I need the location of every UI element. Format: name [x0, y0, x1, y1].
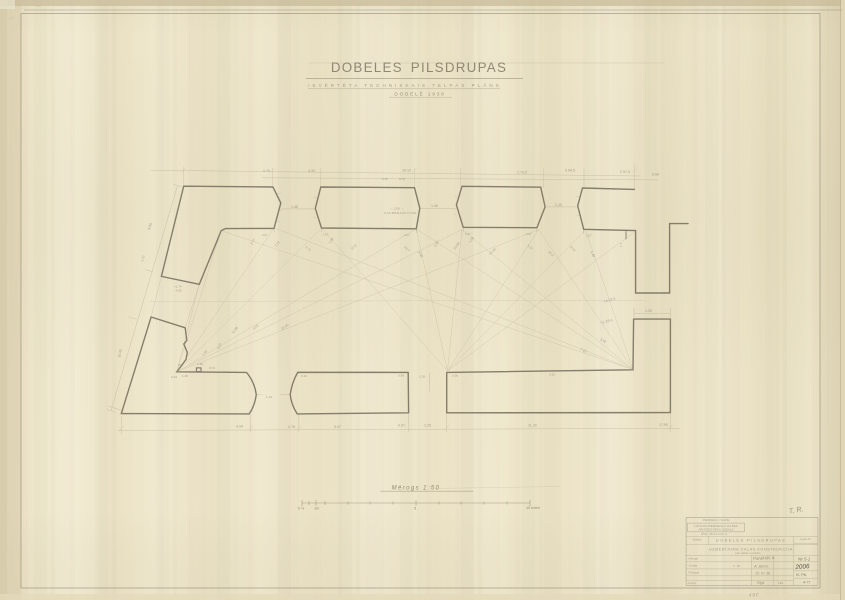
svg-text:DOBELES PILSDRUPAS: DOBELES PILSDRUPAS: [331, 60, 507, 75]
svg-text:10 metri: 10 metri: [526, 506, 540, 510]
svg-text:1.96: 1.96: [197, 362, 203, 366]
svg-text:DOBELES PILSDRUPAS: DOBELES PILSDRUPAS: [716, 538, 786, 543]
svg-text:4-77: 4-77: [803, 580, 811, 584]
svg-text:0.74: 0.74: [209, 366, 215, 370]
svg-text:PIEMINEKĻU VALDE: PIEMINEKĻU VALDE: [703, 518, 730, 522]
svg-text:1.70,5: 1.70,5: [517, 171, 527, 175]
svg-text:6.08: 6.08: [652, 173, 659, 177]
svg-text:N. Pb.: N. Pb.: [796, 572, 807, 577]
svg-text:1.46: 1.46: [431, 204, 438, 208]
svg-text:1.26: 1.26: [424, 423, 431, 427]
svg-text:2.57,5: 2.57,5: [620, 170, 630, 174]
svg-text:0.24: 0.24: [171, 375, 177, 379]
svg-text:1.07: 1.07: [323, 232, 329, 236]
svg-text:2.07: 2.07: [404, 233, 410, 237]
svg-text:0.5: 0.5: [178, 363, 183, 367]
svg-text:ARHITEKTŪRAS NODAĻA: ARHITEKTŪRAS NODAĻA: [698, 528, 733, 532]
svg-text:0.97: 0.97: [398, 424, 405, 428]
svg-text:2.07: 2.07: [262, 233, 268, 237]
svg-text:RĪGĀ, PILS LAUK. 3: RĪGĀ, PILS LAUK. 3: [701, 532, 727, 536]
svg-text:IEVĒRTĒTA TECHNISKAIS TELPAS P: IEVĒRTĒTA TECHNISKAIS TELPAS PLĀNS: [308, 82, 501, 88]
svg-text:1 : 50: 1 : 50: [733, 564, 740, 568]
svg-text:15. IV. 38.: 15. IV. 38.: [755, 572, 771, 576]
svg-text:Rīgā: Rīgā: [757, 581, 764, 585]
svg-text:DOBELĒ 1938: DOBELĒ 1938: [394, 91, 445, 98]
svg-text:0.90: 0.90: [398, 374, 404, 378]
svg-text:1.45: 1.45: [182, 374, 188, 378]
svg-text:Mērogs: Mērogs: [689, 557, 699, 561]
svg-text:0.45: 0.45: [382, 177, 388, 181]
svg-text:1.46: 1.46: [291, 205, 298, 209]
svg-text:2.76: 2.76: [288, 425, 295, 429]
svg-text:Zīmēja: Zīmēja: [689, 564, 698, 568]
svg-text:1.07: 1.07: [465, 232, 471, 236]
svg-text:Pārbaud.: Pārbaud.: [689, 571, 701, 575]
svg-text:CAURBRAUKTUVE: CAURBRAUKTUVE: [384, 211, 417, 215]
svg-text:2.62: 2.62: [549, 372, 555, 376]
svg-text:1m: 1m: [314, 507, 319, 511]
svg-text:5: 5: [414, 507, 416, 511]
svg-text:Objekts: Objekts: [692, 538, 702, 542]
svg-text:193: 193: [778, 581, 783, 585]
svg-text:-0.30: -0.30: [175, 289, 182, 293]
svg-text:10.12: 10.12: [402, 169, 411, 173]
svg-text:1.26: 1.26: [419, 374, 425, 378]
svg-text:pēc dabas uzmērīts: pēc dabas uzmērīts: [735, 551, 761, 555]
svg-text:Apstipr.: Apstipr.: [688, 581, 698, 585]
svg-text:11.30: 11.30: [528, 424, 537, 428]
svg-text:3.56: 3.56: [452, 374, 458, 378]
svg-text:4.33: 4.33: [308, 169, 315, 173]
svg-text:Lapas Nr.: Lapas Nr.: [800, 537, 811, 541]
svg-text:4 б F: 4 б F: [749, 593, 759, 598]
svg-text:0 ½: 0 ½: [298, 507, 305, 511]
svg-text:A. Birzn.: A. Birzn.: [753, 564, 769, 569]
svg-text:4.94: 4.94: [236, 424, 243, 428]
svg-text:5.97: 5.97: [334, 425, 341, 429]
svg-text:1.07: 1.07: [586, 234, 592, 238]
svg-text:1.10: 1.10: [555, 203, 562, 207]
svg-text:1.14: 1.14: [266, 395, 272, 399]
svg-text:1.20: 1.20: [645, 309, 652, 313]
svg-text:2006: 2006: [794, 563, 810, 571]
svg-text:0.70: 0.70: [399, 177, 405, 181]
svg-text:№ 5-1: № 5-1: [798, 556, 811, 561]
svg-text:0.42: 0.42: [301, 374, 307, 378]
svg-text:1.70: 1.70: [263, 169, 270, 173]
svg-text:2.07: 2.07: [526, 232, 532, 236]
svg-text:1.7: 1.7: [619, 243, 623, 248]
svg-text:0.94,5: 0.94,5: [565, 169, 575, 173]
svg-text:17.90: 17.90: [659, 423, 668, 427]
